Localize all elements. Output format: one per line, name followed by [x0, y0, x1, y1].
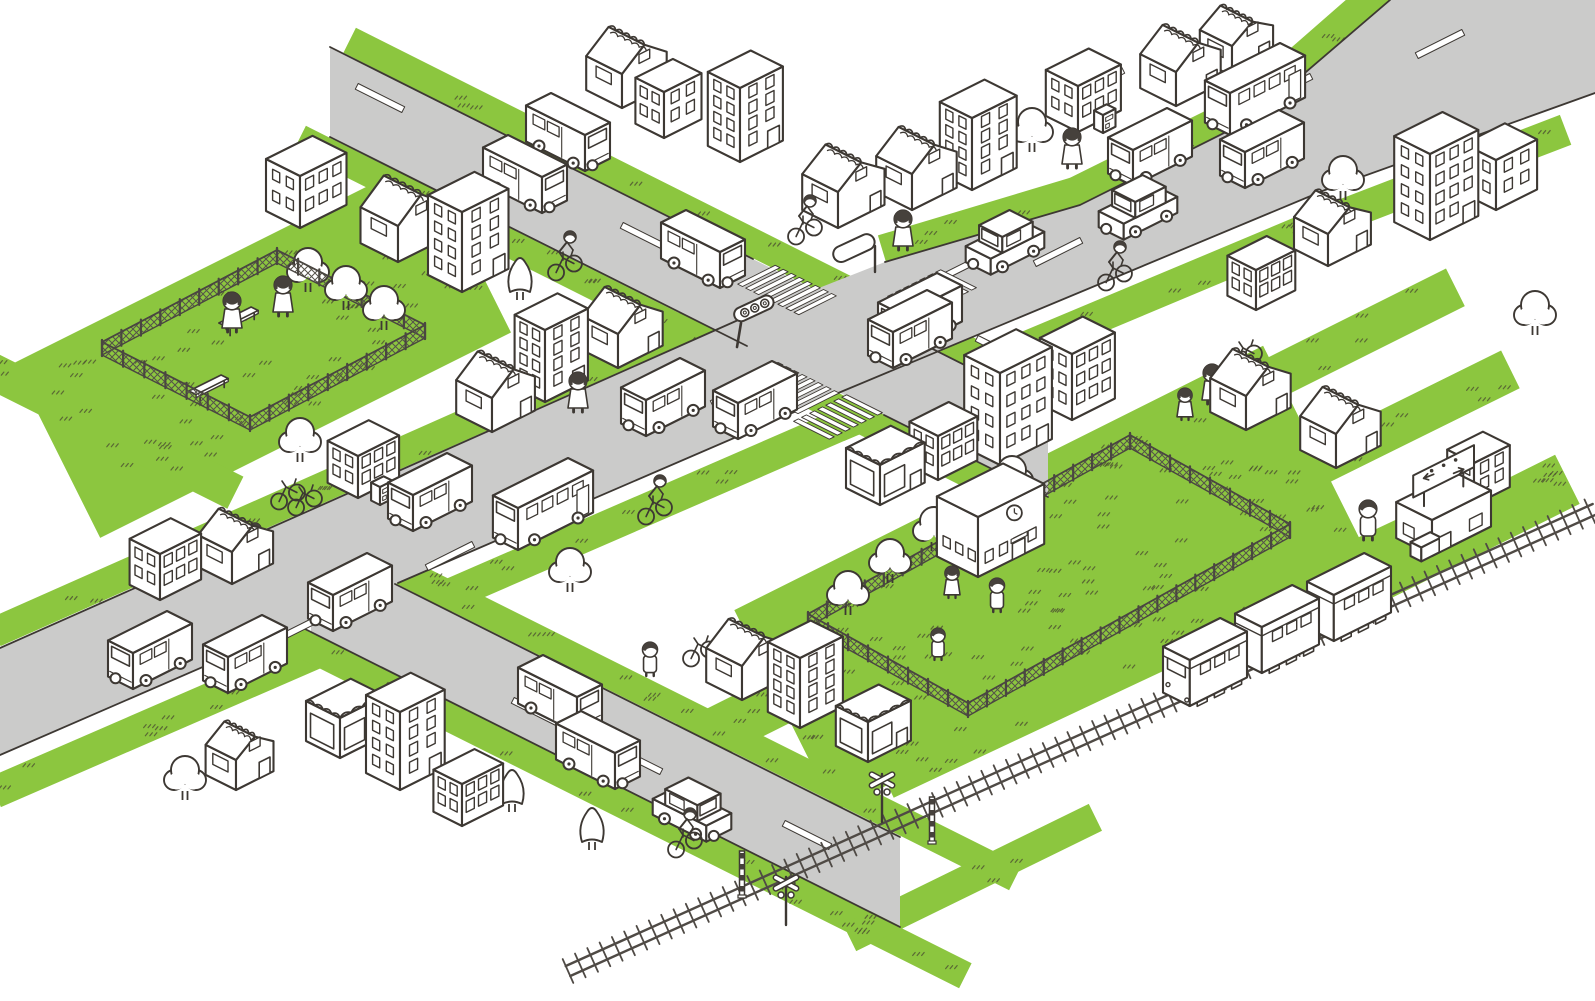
woman-figure — [893, 210, 913, 250]
shop — [846, 426, 925, 505]
house — [206, 720, 274, 790]
boy-figure — [643, 642, 658, 676]
conifer-tree — [580, 808, 603, 850]
woman-figure — [222, 292, 242, 332]
tree — [1514, 291, 1556, 335]
office-building — [1394, 112, 1478, 240]
boy-figure — [931, 628, 945, 660]
woman-figure — [273, 276, 293, 316]
vending-machine — [1094, 104, 1115, 133]
woman-figure — [568, 372, 588, 412]
office-building — [428, 172, 509, 292]
girl-figure — [944, 566, 960, 598]
crossing-stripe-pole — [928, 797, 936, 844]
tree — [164, 756, 206, 800]
boy-figure — [990, 578, 1005, 612]
house — [802, 144, 884, 228]
woman-figure — [1062, 128, 1082, 168]
girl-figure — [1177, 388, 1193, 420]
town-map-illustration — [0, 0, 1595, 1001]
street-signboard — [831, 232, 878, 272]
town-map-canvas — [0, 0, 1595, 1001]
crossing-stripe-pole — [738, 851, 746, 898]
office-building — [768, 621, 843, 729]
man-figure — [1359, 500, 1377, 540]
office-building — [708, 51, 783, 163]
ground-layer — [0, 0, 1595, 988]
